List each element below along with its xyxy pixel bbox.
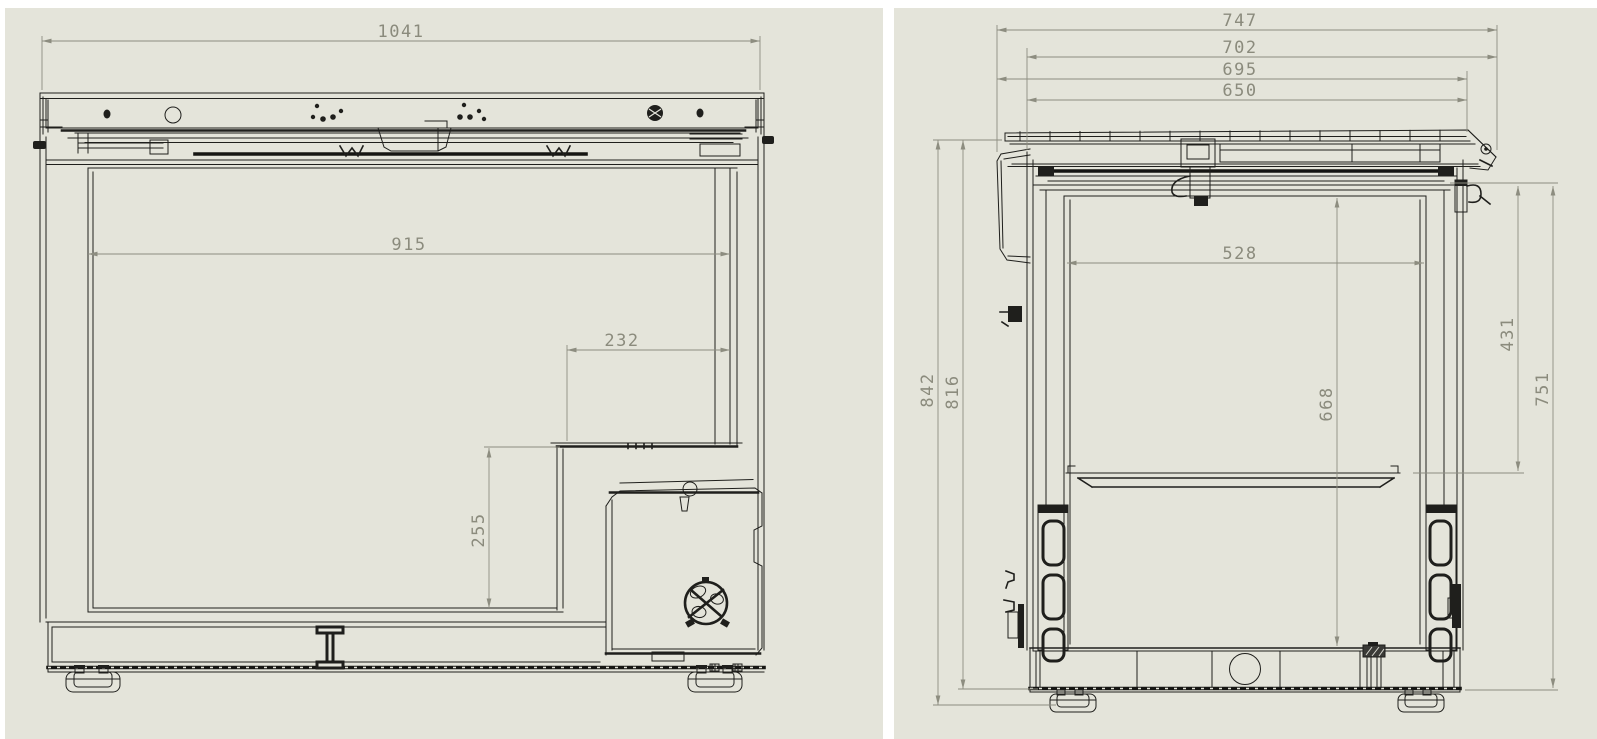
cad-drawing: 1041 915 232 255 (0, 0, 1597, 739)
dim-hinge-to-base: 751 (1533, 371, 1553, 406)
dim-liner-width-front: 528 (1222, 244, 1257, 264)
dim-lid-width: 695 (1222, 60, 1257, 80)
dim-hinge-to-tray: 431 (1498, 316, 1518, 351)
dim-liner-width: 915 (391, 235, 426, 255)
dim-liner-depth: 668 (1317, 386, 1337, 421)
corrugated-panel-right (1426, 505, 1456, 661)
right-sheet (894, 8, 1597, 739)
drawing-sheet: 1041 915 232 255 (0, 0, 1597, 739)
dim-overall-width: 1041 (378, 22, 425, 42)
dim-lid-overall: 747 (1222, 11, 1257, 31)
left-sheet (5, 8, 883, 739)
corrugated-panel-left (1038, 505, 1068, 661)
dim-body-height: 816 (943, 374, 963, 409)
lid-hole (104, 110, 111, 119)
dim-overall-height: 842 (918, 372, 938, 407)
dim-step-height: 255 (469, 512, 489, 547)
dim-step-width: 232 (604, 331, 639, 351)
dim-overall-with-hinge: 702 (1222, 38, 1257, 58)
dim-cabinet-width: 650 (1222, 81, 1257, 101)
